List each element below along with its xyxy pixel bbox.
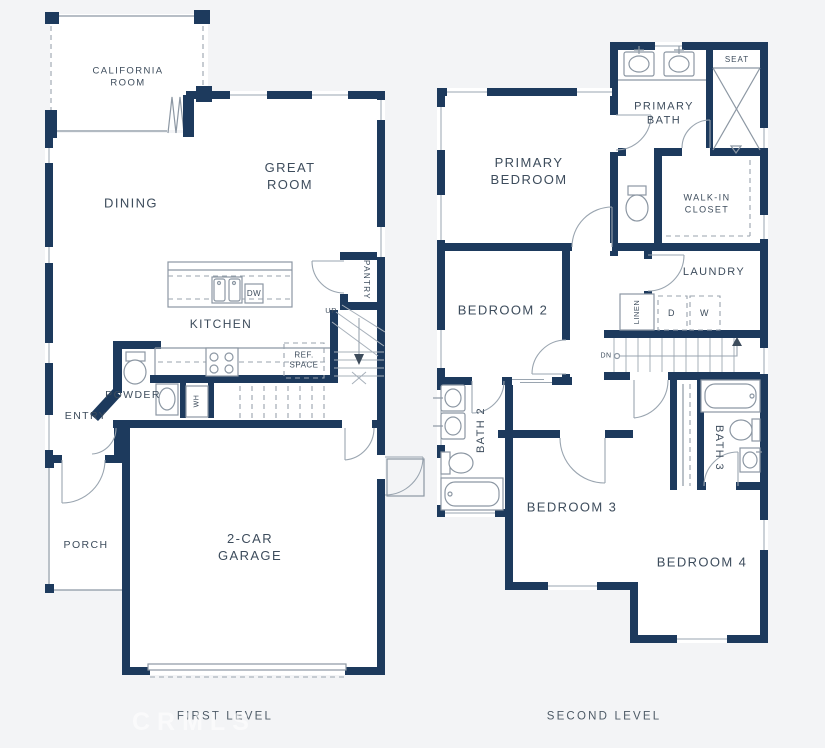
bathtub-icon: [441, 478, 503, 510]
annotation-washer: W: [700, 308, 710, 320]
room-label-walk-in-closet: WALK-IN CLOSET: [684, 192, 731, 215]
toilet-icon: [730, 419, 760, 441]
room-label-garage: 2-CAR GARAGE: [218, 531, 282, 565]
room-label-primary-bath: PRIMARY BATH: [634, 100, 694, 129]
annotation-down: DN: [600, 351, 611, 360]
room-label-bedroom-4: BEDROOM 4: [657, 555, 748, 572]
room-label-bedroom-3: BEDROOM 3: [527, 500, 618, 517]
room-label-powder: POWDER: [105, 389, 161, 403]
room-label-porch: PORCH: [64, 539, 109, 553]
porch-floor: [48, 462, 122, 590]
room-label-primary-bedroom: PRIMARY BEDROOM: [491, 155, 568, 189]
watermark: CRMLS: [132, 708, 256, 737]
bathtub-icon: [701, 380, 760, 412]
first-level-plan: [45, 10, 424, 677]
room-label-dining: DINING: [104, 196, 158, 213]
toilet-icon: [441, 452, 473, 474]
second-level-floor: [441, 46, 764, 639]
garage-door: [148, 664, 346, 677]
floor-plan-graphic: [0, 0, 825, 748]
annotation-water-heater: WH: [192, 395, 201, 408]
room-label-laundry: LAUNDRY: [683, 265, 745, 279]
room-label-entry: ENTRY: [65, 410, 107, 424]
room-label-bath-3: BATH 3: [712, 425, 726, 471]
room-label-bedroom-2: BEDROOM 2: [458, 303, 549, 320]
room-label-california-room: CALIFORNIA ROOM: [92, 66, 163, 91]
second-level-plan: [433, 42, 768, 643]
room-label-pantry: PANTRY: [361, 260, 371, 300]
annotation-dishwasher: DW: [247, 289, 261, 299]
room-label-bath-2: BATH 2: [474, 407, 488, 453]
second-level-title: SECOND LEVEL: [547, 710, 662, 725]
annotation-seat: SEAT: [725, 55, 749, 65]
annotation-dryer: D: [668, 308, 676, 320]
floor-plan-page: CALIFORNIA ROOM DINING GREAT ROOM KITCHE…: [0, 0, 825, 748]
sink-icon: [740, 448, 762, 472]
toilet-icon: [124, 352, 146, 384]
annotation-linen: LINEN: [632, 300, 642, 325]
kitchen-sink-icon: [212, 277, 242, 303]
toilet-icon: [626, 186, 648, 221]
kitchen-island: [168, 262, 292, 307]
room-label-kitchen: KITCHEN: [190, 317, 252, 333]
room-label-great-room: GREAT ROOM: [265, 160, 316, 194]
annotation-up: UP: [325, 306, 336, 316]
annotation-ref-space: REF. SPACE: [289, 351, 318, 372]
range-icon: [206, 348, 238, 376]
